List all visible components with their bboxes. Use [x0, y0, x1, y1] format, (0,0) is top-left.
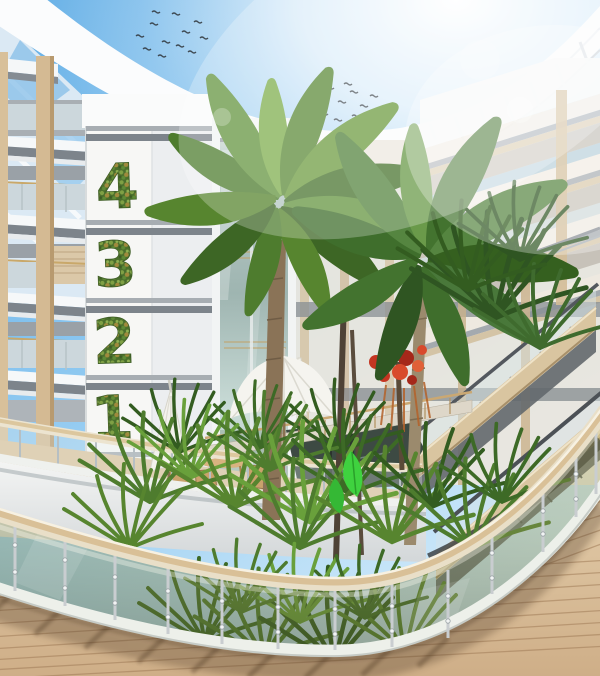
floor-number-4: 4 — [94, 149, 140, 223]
left-balconies — [0, 52, 90, 472]
atrium-rendering: 4 3 2 1 — [0, 0, 600, 676]
floor-number-2: 2 — [91, 304, 137, 378]
scene-svg: 4 3 2 1 — [0, 0, 600, 676]
timber-column — [0, 52, 8, 472]
floor-number-3: 3 — [92, 227, 138, 301]
